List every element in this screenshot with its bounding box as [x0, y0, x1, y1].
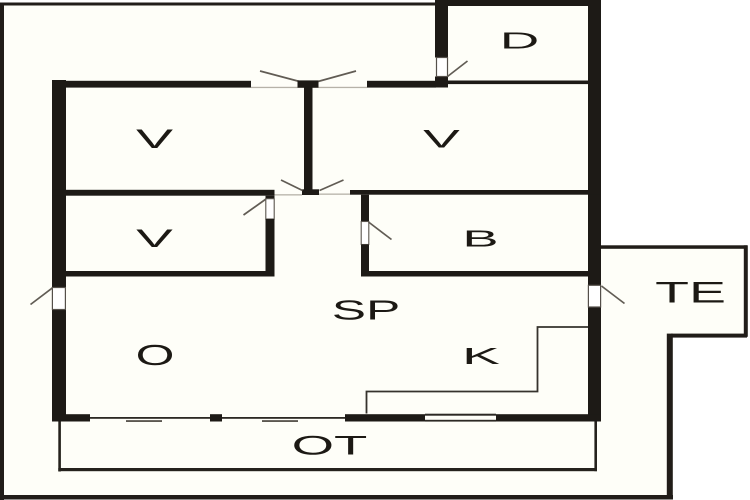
svg-text:V: V [423, 125, 460, 153]
svg-text:B: B [462, 226, 498, 252]
svg-text:SP: SP [332, 295, 401, 326]
svg-text:V: V [136, 124, 173, 154]
svg-text:V: V [136, 225, 173, 253]
svg-text:O: O [136, 339, 175, 371]
svg-text:K: K [462, 343, 500, 369]
svg-text:OT: OT [292, 431, 368, 461]
svg-text:TE: TE [655, 276, 726, 309]
svg-text:D: D [500, 28, 540, 54]
